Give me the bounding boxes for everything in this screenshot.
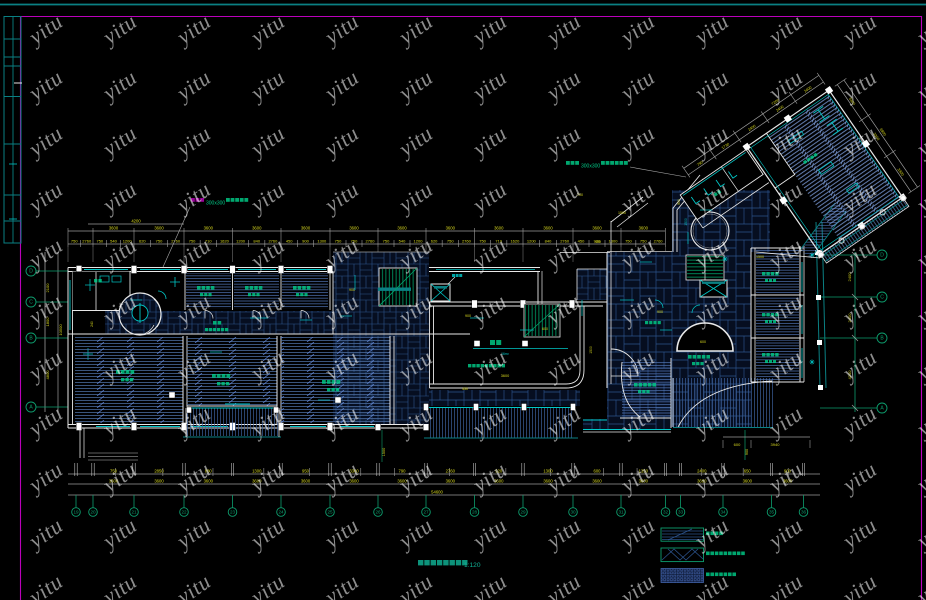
svg-text:54600: 54600 [431,489,443,494]
svg-text:750: 750 [383,239,390,244]
svg-text:1620: 1620 [220,239,230,244]
svg-text:950: 950 [302,469,310,474]
svg-text:750: 750 [156,239,163,244]
svg-text:32: 32 [663,510,669,515]
svg-text:1500: 1500 [684,218,688,226]
svg-text:C: C [880,295,884,301]
svg-text:600: 600 [734,442,741,447]
svg-text:2760: 2760 [171,239,181,244]
svg-text:450: 450 [578,239,585,244]
svg-text:3600: 3600 [446,226,456,231]
svg-text:24: 24 [278,510,284,515]
svg-text:34: 34 [720,510,726,515]
svg-text:2760: 2760 [366,239,376,244]
svg-text:27: 27 [423,510,429,515]
svg-text:29: 29 [520,510,526,515]
svg-text:650: 650 [744,469,752,474]
svg-text:33: 33 [678,510,684,515]
svg-text:620: 620 [139,239,146,244]
svg-text:31: 31 [618,510,624,515]
svg-text:1200: 1200 [527,239,537,244]
svg-text:10500: 10500 [58,324,63,336]
svg-text:28: 28 [472,510,478,515]
svg-text:900: 900 [677,199,681,205]
svg-text:3600: 3600 [543,226,553,231]
svg-text:1:120: 1:120 [464,562,481,569]
svg-text:1500: 1500 [618,211,626,215]
svg-text:22: 22 [181,510,187,515]
svg-text:3600: 3600 [743,479,753,484]
svg-text:450: 450 [595,240,601,244]
svg-text:1620: 1620 [510,239,520,244]
svg-text:19: 19 [73,510,79,515]
svg-text:3600: 3600 [154,226,164,231]
svg-text:900: 900 [302,239,309,244]
svg-text:1500: 1500 [382,448,386,456]
svg-text:D: D [880,253,884,259]
svg-text:3600: 3600 [301,226,311,231]
svg-text:450: 450 [286,239,293,244]
svg-text:2760: 2760 [654,239,664,244]
svg-text:2760: 2760 [82,239,92,244]
svg-text:3600: 3600 [204,226,214,231]
svg-text:3600: 3600 [494,226,504,231]
svg-text:3600: 3600 [252,226,262,231]
svg-text:D: D [29,269,33,275]
svg-text:900: 900 [745,449,749,455]
svg-text:1500: 1500 [756,255,764,259]
svg-text:600: 600 [594,469,602,474]
svg-text:300x300: 300x300 [581,164,600,170]
svg-text:540: 540 [399,239,406,244]
svg-text:450: 450 [462,387,468,391]
svg-text:3600: 3600 [592,226,602,231]
svg-text:750: 750 [71,239,78,244]
svg-text:1200: 1200 [236,239,246,244]
svg-text:1500: 1500 [589,346,593,354]
svg-text:840: 840 [545,239,552,244]
svg-text:25: 25 [327,510,333,515]
svg-text:240: 240 [90,321,94,327]
svg-text:2760: 2760 [446,469,456,474]
svg-text:750: 750 [447,239,454,244]
svg-text:3600: 3600 [154,479,164,484]
svg-text:3600: 3600 [301,479,311,484]
svg-text:20: 20 [90,510,96,515]
svg-text:3600: 3600 [639,226,649,231]
svg-text:26: 26 [375,510,381,515]
svg-text:3600: 3600 [501,374,509,378]
svg-text:600: 600 [542,327,548,331]
svg-text:2760: 2760 [462,239,472,244]
svg-text:4200: 4200 [131,218,141,223]
svg-text:750: 750 [96,239,103,244]
svg-text:21: 21 [131,510,137,515]
svg-text:3600: 3600 [349,226,359,231]
svg-text:1300: 1300 [317,239,327,244]
svg-text:3600: 3600 [397,226,407,231]
svg-text:1300: 1300 [609,239,619,244]
svg-text:3940: 3940 [771,442,781,447]
svg-text:3600: 3600 [109,226,119,231]
svg-text:2850: 2850 [154,469,164,474]
svg-text:900: 900 [657,310,663,314]
svg-text:35: 35 [769,510,775,515]
svg-text:900: 900 [465,314,471,318]
svg-text:3600: 3600 [592,479,602,484]
svg-text:620: 620 [431,239,438,244]
svg-text:3600: 3600 [446,479,456,484]
svg-text:36: 36 [801,510,807,515]
svg-text:23: 23 [230,510,236,515]
svg-text:600: 600 [700,340,706,344]
